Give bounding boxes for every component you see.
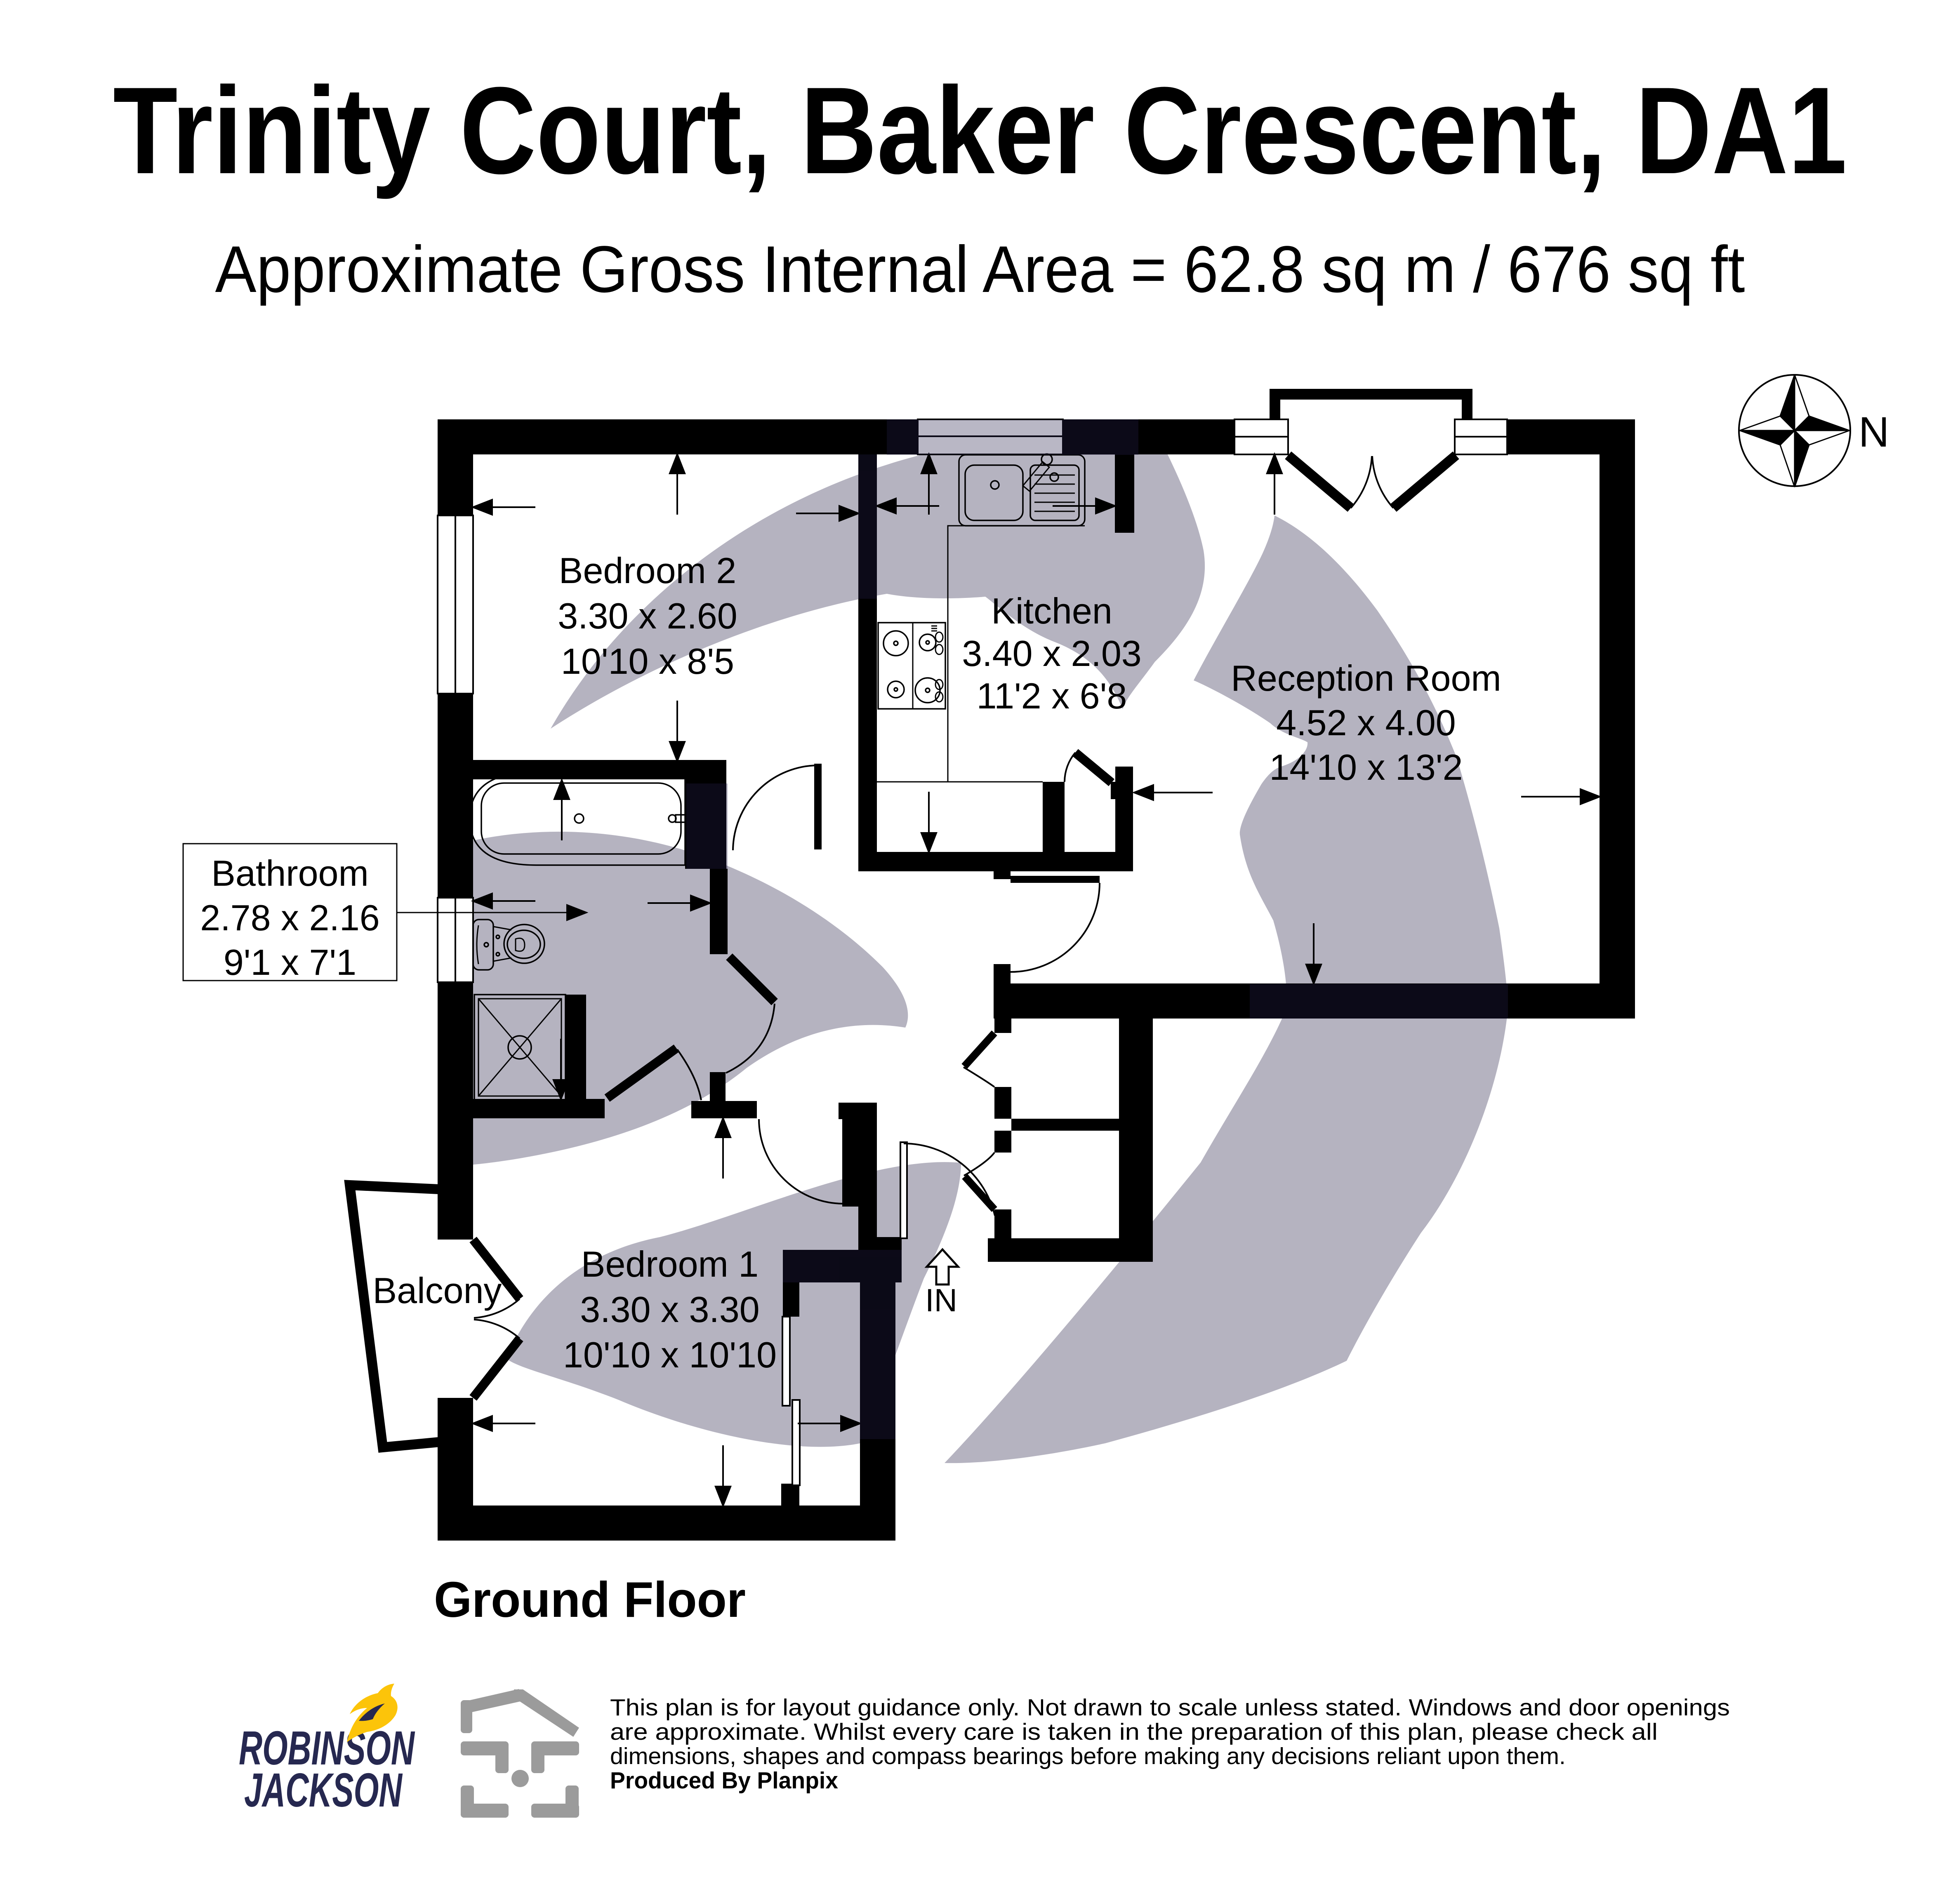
svg-text:11'2 x 6'8: 11'2 x 6'8	[977, 675, 1127, 716]
svg-text:dimensions, shapes and compass: dimensions, shapes and compass bearings …	[610, 1743, 1566, 1769]
svg-text:Trinity Court, Baker Crescent,: Trinity Court, Baker Crescent, DA1	[113, 61, 1847, 200]
svg-text:Produced By Planpix: Produced By Planpix	[610, 1767, 838, 1794]
svg-text:3.40 x 2.03: 3.40 x 2.03	[962, 633, 1141, 674]
svg-text:14'10 x 13'2: 14'10 x 13'2	[1269, 747, 1463, 788]
svg-text:JACKSON: JACKSON	[244, 1763, 403, 1817]
svg-text:Bedroom 2: Bedroom 2	[559, 550, 736, 591]
svg-text:3.30 x 3.30: 3.30 x 3.30	[580, 1289, 759, 1330]
svg-text:Bedroom 1: Bedroom 1	[581, 1244, 759, 1284]
svg-text:2.78 x 2.16: 2.78 x 2.16	[200, 897, 379, 938]
svg-text:Reception Room: Reception Room	[1231, 658, 1501, 699]
svg-text:Bathroom: Bathroom	[211, 853, 369, 894]
svg-text:3.30 x 2.60: 3.30 x 2.60	[558, 595, 737, 636]
svg-text:10'10 x 8'5: 10'10 x 8'5	[561, 641, 734, 682]
svg-text:4.52 x 4.00: 4.52 x 4.00	[1276, 702, 1456, 743]
svg-text:This plan is for layout guidan: This plan is for layout guidance only. N…	[610, 1694, 1730, 1721]
svg-text:Approximate Gross Internal Are: Approximate Gross Internal Area = 62.8 s…	[215, 232, 1745, 306]
svg-text:9'1 x 7'1: 9'1 x 7'1	[224, 942, 356, 983]
svg-text:IN: IN	[925, 1282, 957, 1318]
svg-text:N: N	[1859, 408, 1889, 456]
svg-text:Kitchen: Kitchen	[991, 590, 1112, 631]
svg-text:are approximate. Whilst every: are approximate. Whilst every care is ta…	[610, 1719, 1658, 1745]
svg-text:10'10 x 10'10: 10'10 x 10'10	[563, 1334, 777, 1375]
svg-text:Ground Floor: Ground Floor	[434, 1571, 746, 1628]
svg-text:Balcony: Balcony	[372, 1270, 502, 1311]
